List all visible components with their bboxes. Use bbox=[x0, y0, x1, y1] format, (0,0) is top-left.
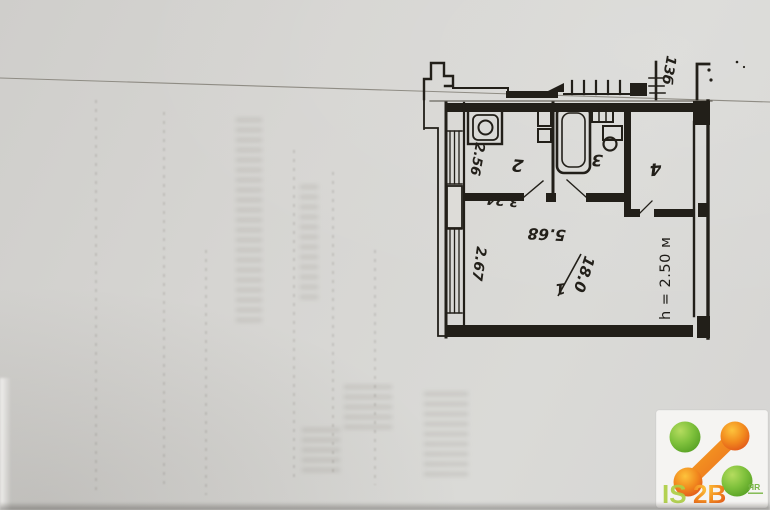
room-1-area: 18.0 bbox=[570, 254, 599, 295]
stove-icon bbox=[468, 110, 502, 144]
is2b-logo-watermark: IS 2B ЯR bbox=[654, 408, 770, 510]
bathtub-icon bbox=[557, 107, 590, 173]
paper-edge bbox=[0, 378, 11, 510]
apartment-number-note: 13б bbox=[658, 54, 679, 86]
door-leaf bbox=[640, 201, 652, 213]
paper-shadow bbox=[0, 502, 770, 510]
window bbox=[448, 229, 462, 313]
bottom-wall bbox=[446, 325, 693, 337]
sink-icon bbox=[538, 111, 551, 142]
plan-walls bbox=[424, 61, 745, 338]
dim-kitchen-depth: 3.24 bbox=[486, 191, 519, 209]
dim-balcony-depth: 2.67 bbox=[468, 245, 489, 282]
ceiling-height-note: h = 2.50 м bbox=[658, 237, 674, 320]
pencil-line bbox=[0, 78, 770, 102]
door-leaf bbox=[567, 180, 586, 197]
window-pier bbox=[447, 186, 462, 228]
window bbox=[448, 131, 462, 184]
wall-hatching bbox=[572, 81, 620, 94]
room-2-number: 2 bbox=[511, 154, 525, 175]
room-3-number: 3 bbox=[591, 150, 603, 170]
stairwell-outline bbox=[424, 63, 453, 99]
hall-wall bbox=[624, 103, 631, 215]
dim-kitchen-width: 2.56 bbox=[466, 141, 488, 177]
room-4-number: 4 bbox=[649, 158, 663, 179]
door-leaf bbox=[524, 181, 543, 197]
scanned-paper: 2 3 4 2.56 3.24 5.68 2.67 1 18.0 h = 2.5… bbox=[0, 0, 770, 510]
room-1-area-fraction: 1 18.0 bbox=[554, 254, 598, 299]
dim-room1-width: 5.68 bbox=[527, 224, 566, 244]
logo-superscript: ЯR bbox=[748, 482, 760, 492]
balcony bbox=[424, 99, 446, 336]
toilet-icon bbox=[603, 126, 622, 151]
ink-specks bbox=[707, 61, 745, 82]
